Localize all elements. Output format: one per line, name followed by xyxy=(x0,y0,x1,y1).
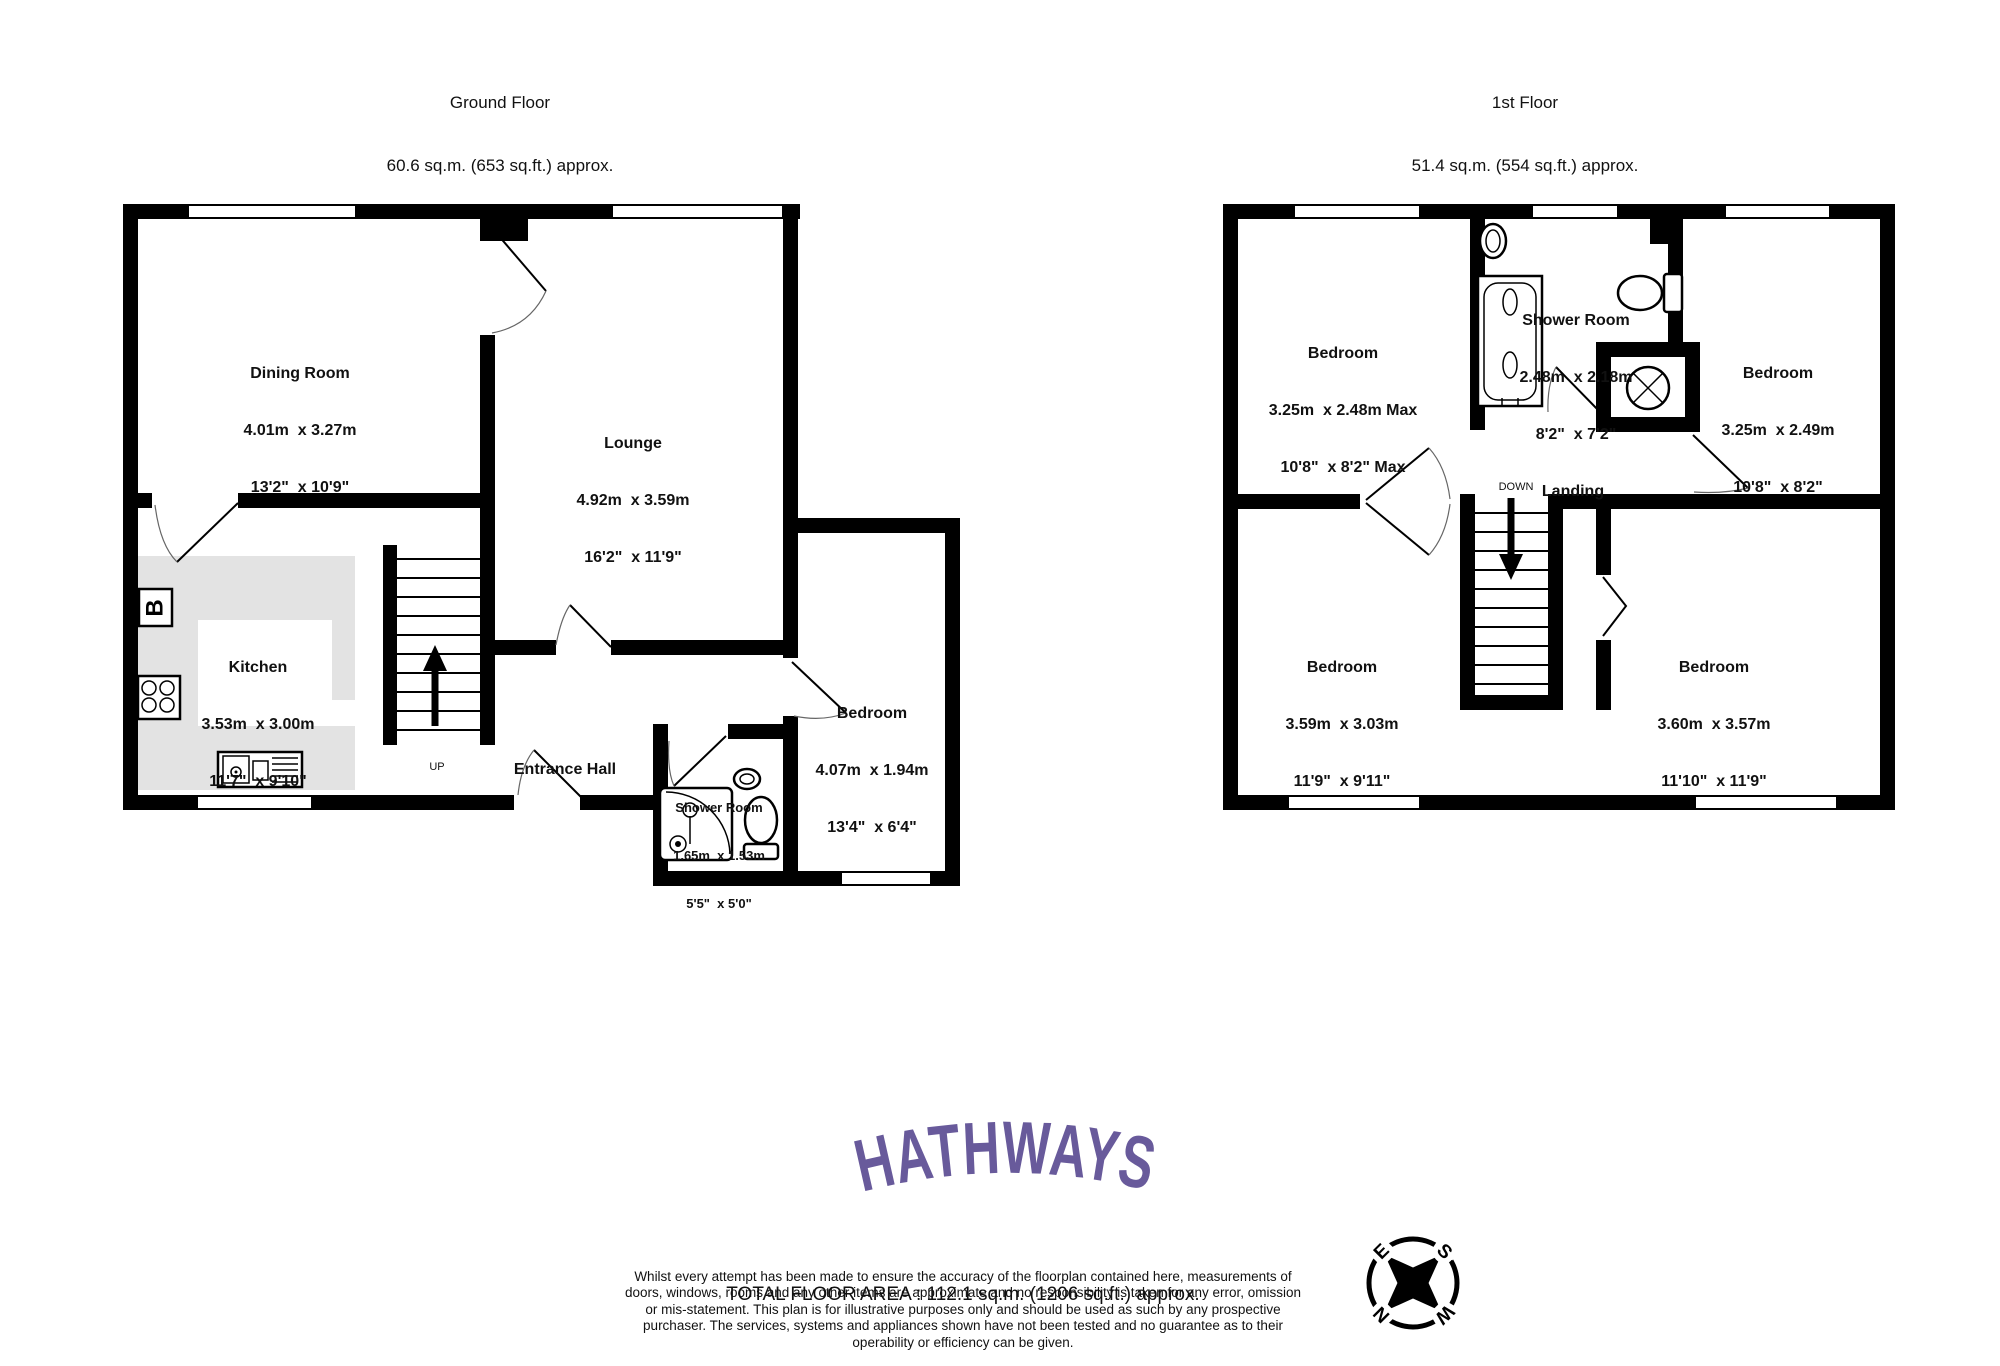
stairs-down-label: DOWN xyxy=(1499,457,1534,517)
cylinder-icon xyxy=(1627,367,1669,409)
room-label-entrance-hall: Entrance Hall xyxy=(514,722,616,817)
ground-floor-title: Ground Floor 60.6 sq.m. (653 sq.ft.) app… xyxy=(387,50,614,218)
floorplan-page: B xyxy=(0,0,2000,1366)
room-label-lounge: Lounge 4.92m x 3.59m 16'2" x 11'9" xyxy=(577,396,690,605)
ground-floor-stairs xyxy=(397,559,481,730)
room-label-gf-bedroom: Bedroom 4.07m x 1.94m 13'4" x 6'4" xyxy=(816,666,929,875)
up-arrow-icon xyxy=(423,645,447,726)
hob-icon xyxy=(138,676,180,719)
room-label-ff-bedroom-4: Bedroom 3.60m x 3.57m 11'10" x 11'9" xyxy=(1658,620,1771,829)
room-label-kitchen: Kitchen 3.53m x 3.00m 11'7" x 9'10" xyxy=(202,620,315,829)
metropix-credit: Made with Metropix ©2026 xyxy=(883,1352,1044,1366)
compass-rose: N E S W xyxy=(1336,1206,1490,1360)
boiler-icon: B xyxy=(139,589,172,626)
bifold-door-icon xyxy=(1603,577,1626,636)
room-label-ff-bedroom-2: Bedroom 3.25m x 2.49m 10'8" x 8'2" xyxy=(1722,326,1835,535)
room-label-dining: Dining Room 4.01m x 3.27m 13'2" x 10'9" xyxy=(244,326,357,535)
disclaimer-text: Whilst every attempt has been made to en… xyxy=(623,1269,1303,1351)
room-label-ff-bedroom-3: Bedroom 3.59m x 3.03m 11'9" x 9'11" xyxy=(1286,620,1399,829)
room-label-gf-shower: Shower Room 1.65m x 1.53m 5'5" x 5'0" xyxy=(673,768,765,944)
first-floor-stairs xyxy=(1475,498,1548,684)
boiler-label: B xyxy=(142,599,169,616)
hathways-logo: HATHWAYS xyxy=(847,1106,1163,1208)
room-label-ff-bedroom-1: Bedroom 3.25m x 2.48m Max 10'8" x 8'2" M… xyxy=(1269,306,1418,515)
compass-star-icon xyxy=(1356,1226,1469,1339)
stairs-up-label: UP xyxy=(429,737,444,797)
room-label-landing: Landing xyxy=(1542,444,1604,539)
basin-icon xyxy=(1480,224,1506,258)
first-floor-title: 1st Floor 51.4 sq.m. (554 sq.ft.) approx… xyxy=(1412,50,1639,218)
